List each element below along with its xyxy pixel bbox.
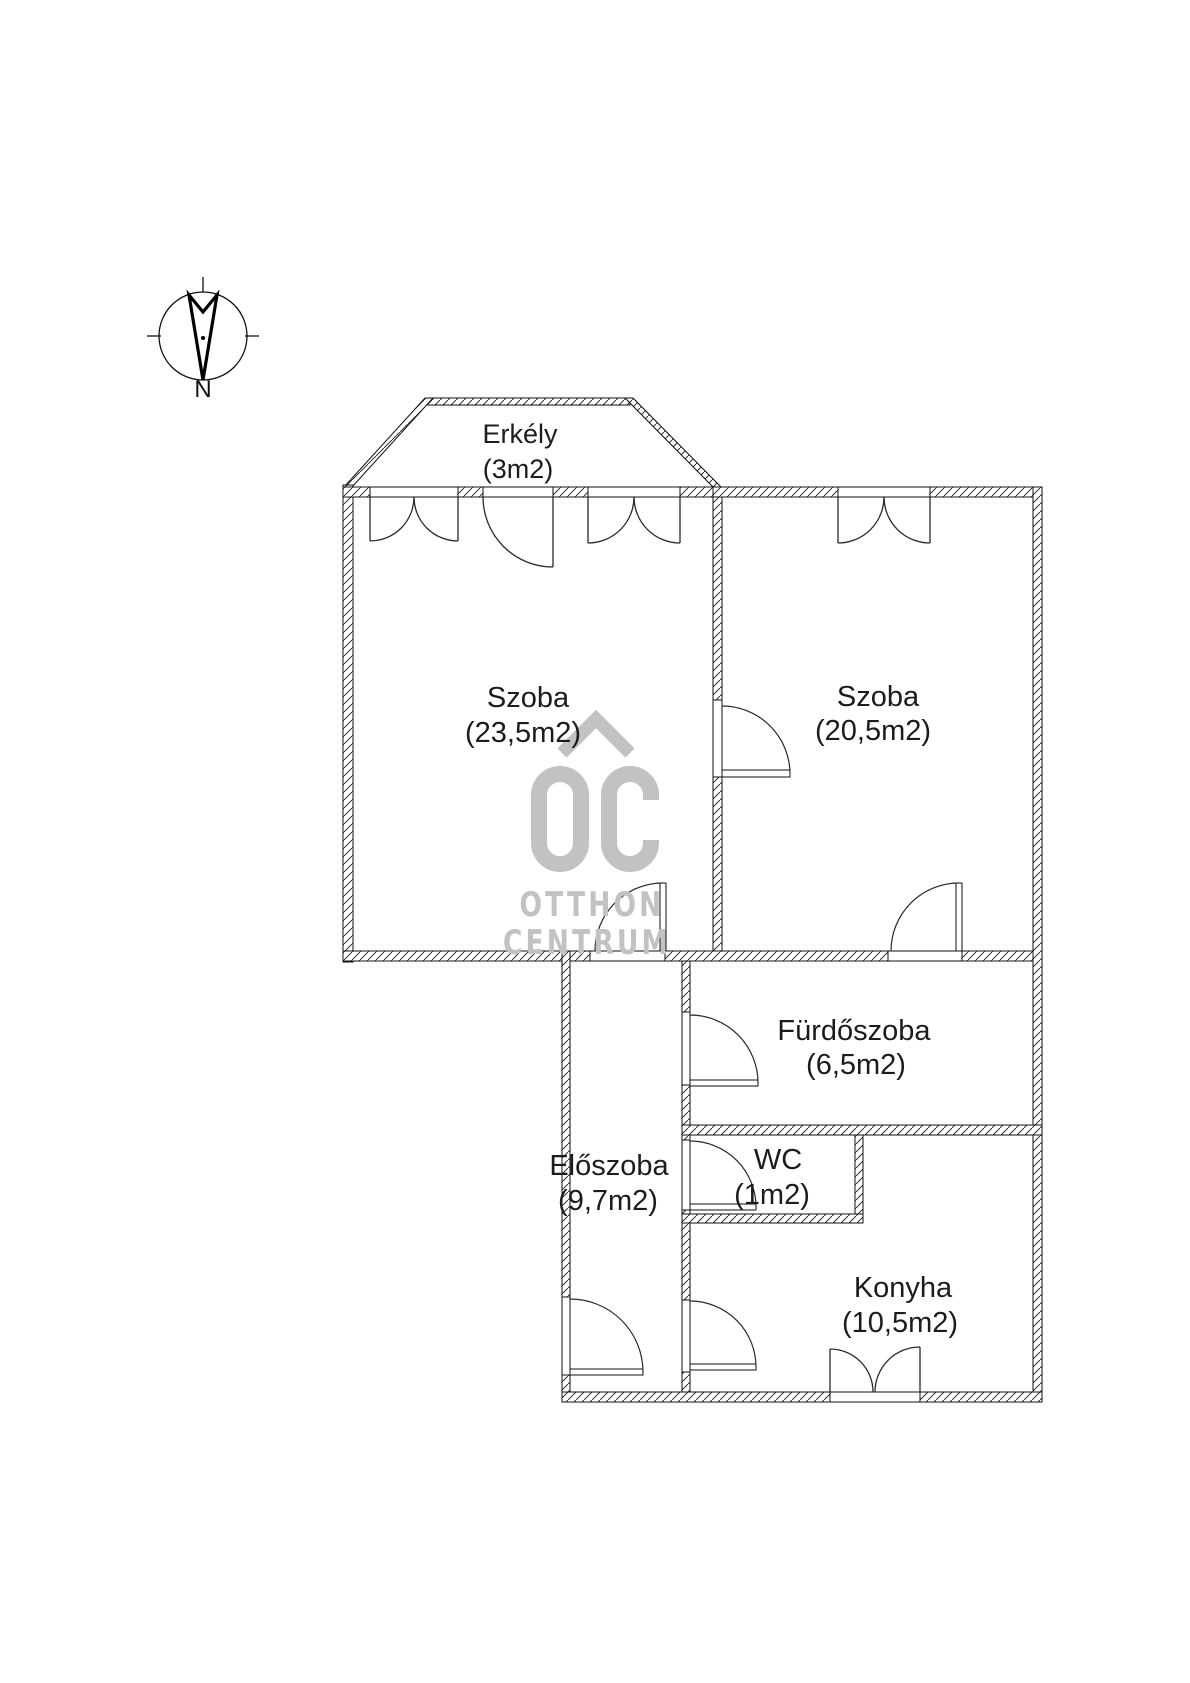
room-label-wc: WC xyxy=(754,1145,802,1177)
window-symbol-konyha xyxy=(830,1347,920,1392)
window-symbol-szoba1-left xyxy=(370,497,458,541)
floorplan-drawing xyxy=(0,0,1190,1683)
watermark-line-centrum: CENTRUM xyxy=(503,926,671,960)
door-eloszoba-konyha xyxy=(690,1301,756,1370)
compass-north-label: N xyxy=(194,378,211,402)
room-label-konyha: Konyha xyxy=(854,1273,952,1305)
compass-center-dot xyxy=(201,336,205,340)
room-area-eloszoba: (9,7m2) xyxy=(558,1186,658,1218)
room-area-szoba1: (23,5m2) xyxy=(465,718,581,750)
walls xyxy=(343,485,1042,1402)
window-symbol-szoba2 xyxy=(838,497,930,543)
room-label-eloszoba: Előszoba xyxy=(549,1151,668,1183)
room-area-szoba2: (20,5m2) xyxy=(815,716,931,748)
door-eloszoba-furdoszoba xyxy=(690,1015,758,1086)
floorplan-page: Erkély (3m2) Szoba (23,5m2) Szoba (20,5m… xyxy=(0,0,1190,1683)
room-area-konyha: (10,5m2) xyxy=(842,1308,958,1340)
room-label-furdoszoba: Fürdőszoba xyxy=(777,1016,930,1048)
room-label-szoba2: Szoba xyxy=(837,682,919,714)
watermark-line-otthon: OTTHON xyxy=(520,888,665,922)
window-symbol-szoba1-right xyxy=(588,497,680,543)
logo-letter-o xyxy=(539,774,581,864)
room-area-erkely: (3m2) xyxy=(483,455,554,485)
room-area-wc: (1m2) xyxy=(734,1180,810,1212)
room-area-furdoszoba: (6,5m2) xyxy=(806,1050,906,1082)
door-szoba2-furdoszoba xyxy=(891,883,962,951)
balcony-door-symbol xyxy=(483,497,553,567)
room-label-erkely: Erkély xyxy=(482,420,557,450)
compass-north-indicator xyxy=(147,277,259,380)
room-label-szoba1: Szoba xyxy=(487,683,569,715)
door-between-rooms xyxy=(722,706,790,777)
logo-letter-c-gap xyxy=(638,800,663,840)
entry-door-eloszoba xyxy=(570,1299,643,1375)
